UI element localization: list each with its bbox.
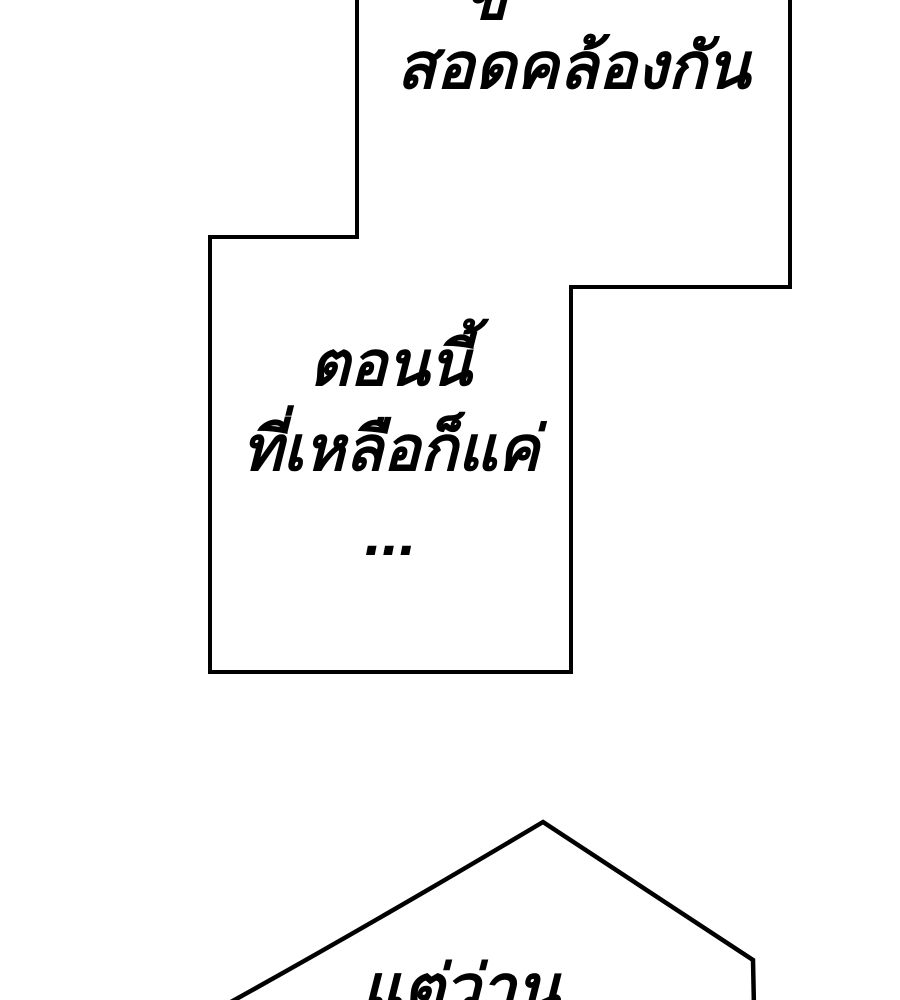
speech-text-bottom-clipped: แต่ว่าน... [220,948,754,1000]
speech-text-middle: ตอนนี้ ที่เหลือก็แค่ ... [210,322,571,577]
speech-text-middle-line-2: ที่เหลือก็แค่ [210,407,571,492]
speech-text-top: สอดคล้องกัน [357,26,790,106]
speech-text-middle-line-1: ตอนนี้ [210,322,571,407]
speech-text-middle-ellipsis: ... [210,492,571,577]
comic-page: ข สอดคล้องกัน ตอนนี้ ที่เหลือก็แค่ ... แ… [0,0,900,1000]
